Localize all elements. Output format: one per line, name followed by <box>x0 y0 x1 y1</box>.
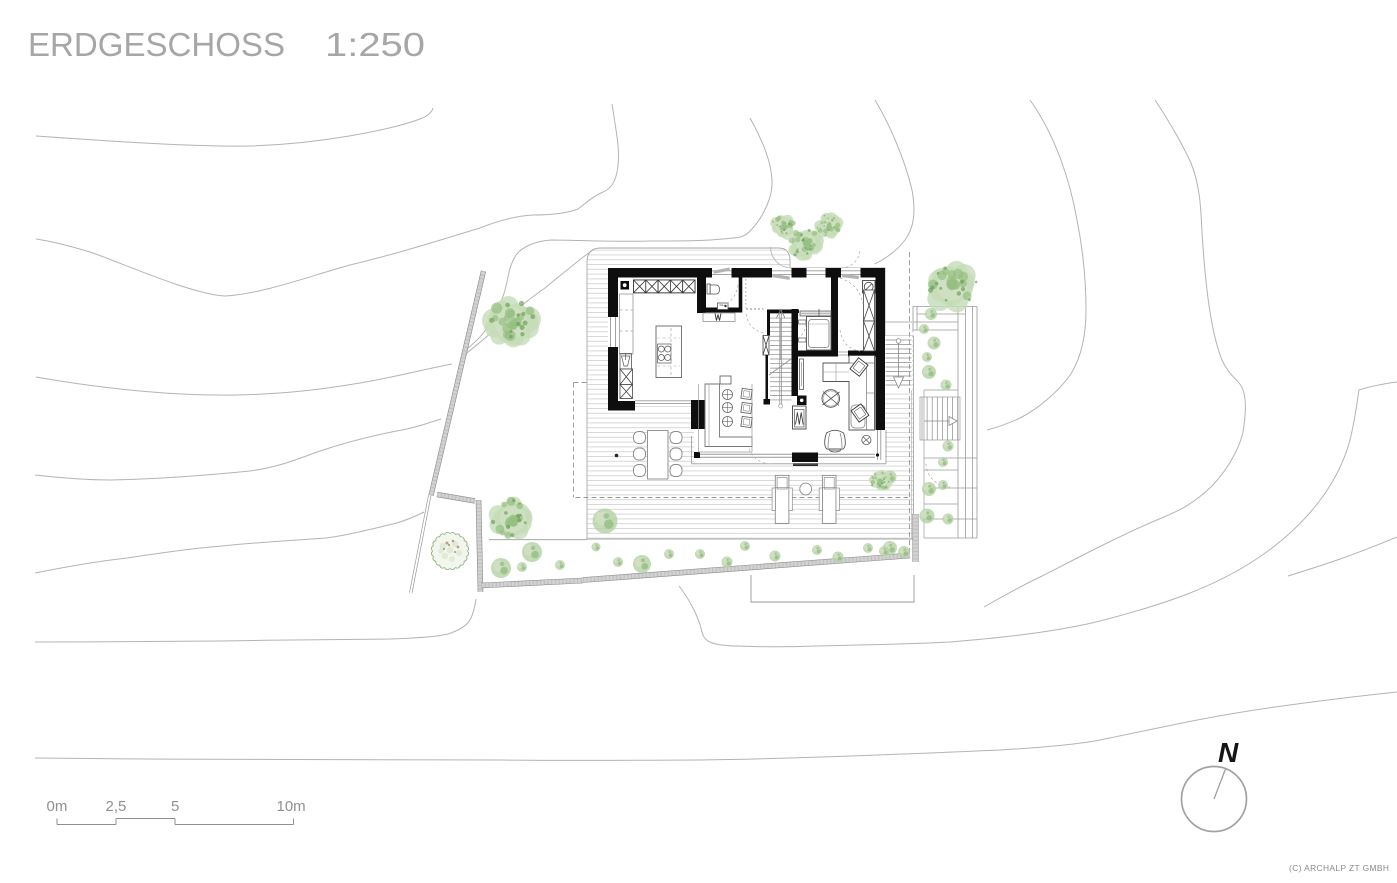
svg-text:0m: 0m <box>47 798 68 815</box>
svg-text:ERDGESCHOSS: ERDGESCHOSS <box>28 26 285 63</box>
svg-text:N: N <box>1218 737 1239 768</box>
svg-text:10m: 10m <box>277 798 306 815</box>
svg-text:(C) ARCHALP ZT GMBH: (C) ARCHALP ZT GMBH <box>1289 863 1389 873</box>
svg-text:2,5: 2,5 <box>106 798 127 815</box>
svg-text:1:250: 1:250 <box>325 26 425 63</box>
svg-text:5: 5 <box>171 798 179 815</box>
